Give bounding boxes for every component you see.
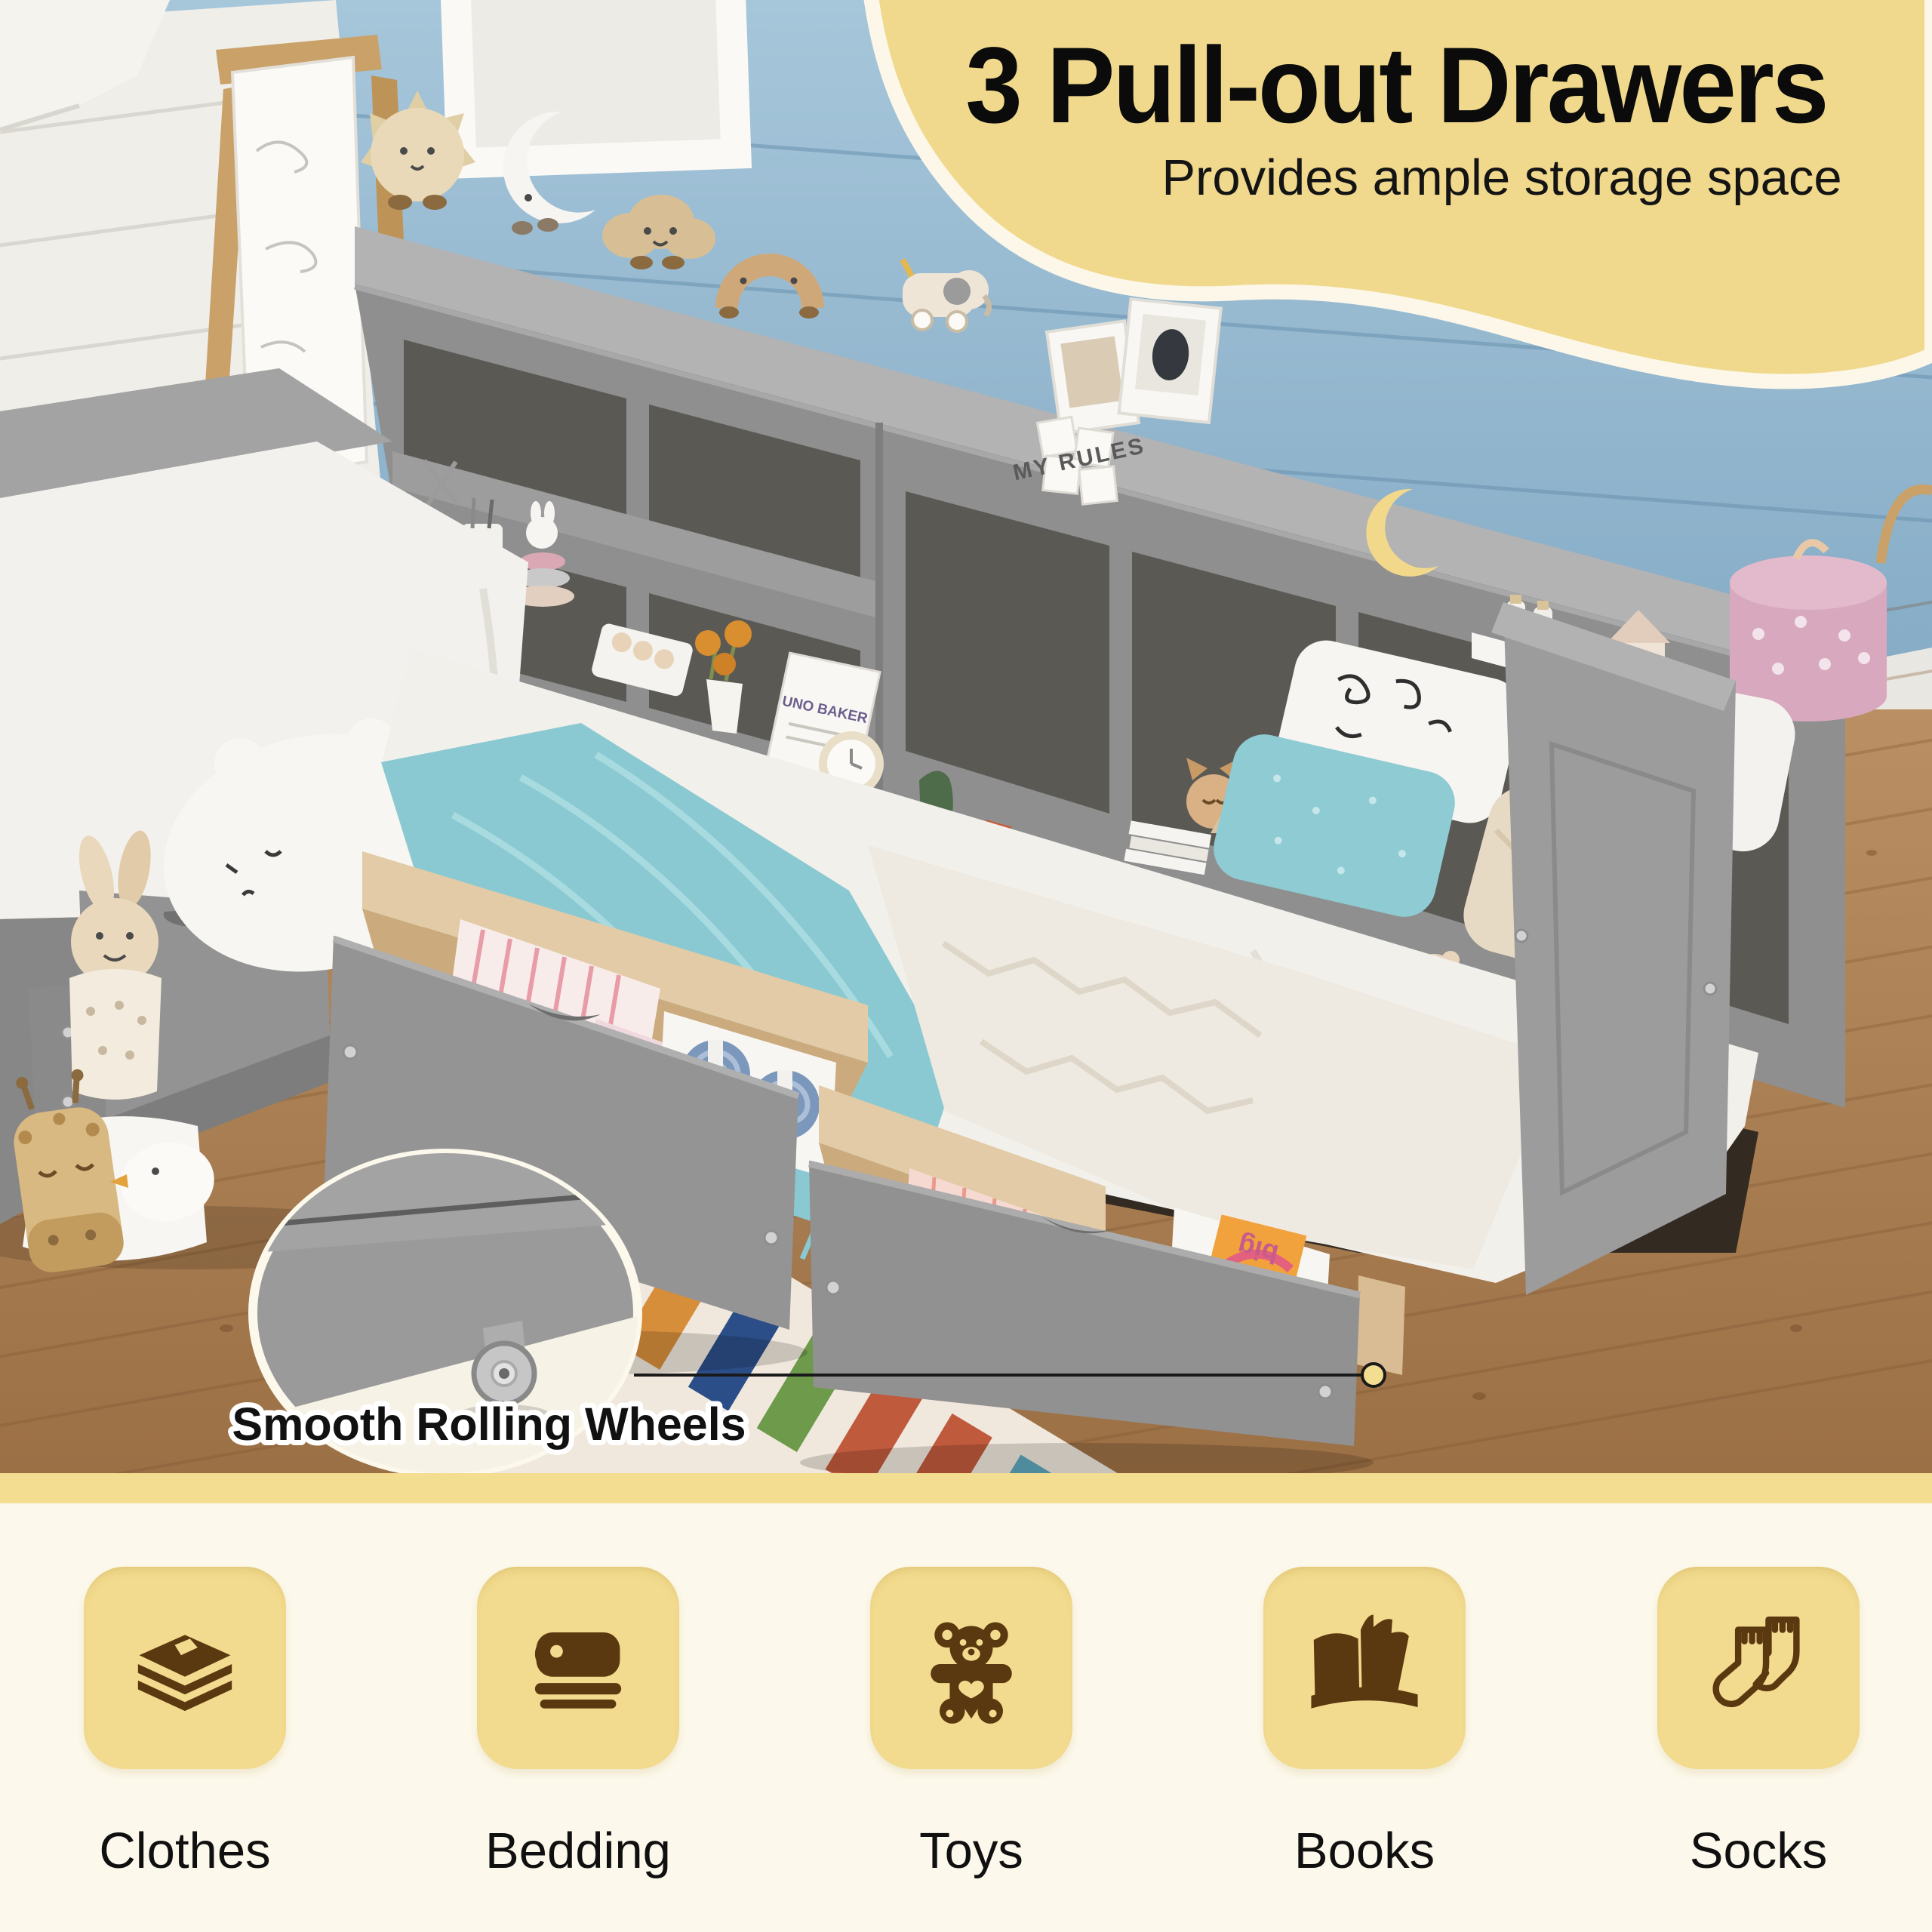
page-subtitle: Provides ample storage space — [1102, 148, 1902, 208]
product-infographic: UNO BAKER — [0, 0, 1932, 1932]
category-toys: Toys — [870, 1567, 1072, 1880]
category-label: Toys — [870, 1822, 1072, 1880]
polka-hatbox — [1730, 543, 1887, 721]
callout-dot — [1362, 1364, 1385, 1386]
clothes-icon — [122, 1604, 248, 1731]
picture-frame — [439, 0, 752, 179]
callout-label: Smooth Rolling Wheels — [232, 1398, 746, 1450]
bedding-icon — [515, 1604, 641, 1731]
toys-tile — [870, 1567, 1072, 1769]
category-label: Bedding — [477, 1822, 679, 1880]
category-books: Books — [1263, 1567, 1466, 1880]
storage-categories-section: Clothes Bedding — [0, 1503, 1932, 1932]
books-icon — [1301, 1604, 1428, 1731]
page-title: 3 Pull-out Drawers — [923, 21, 1869, 151]
category-label: Books — [1263, 1822, 1466, 1880]
category-label: Socks — [1657, 1822, 1860, 1880]
socks-tile — [1657, 1567, 1860, 1769]
bed-leg — [1357, 1275, 1405, 1375]
toys-icon — [908, 1604, 1035, 1731]
socks-icon — [1695, 1604, 1822, 1731]
room-photo-illustration: UNO BAKER — [0, 0, 1932, 1473]
category-bedding: Bedding — [477, 1567, 679, 1880]
footboard — [1491, 602, 1736, 1295]
books-tile — [1263, 1567, 1466, 1769]
category-socks: Socks — [1657, 1567, 1860, 1880]
divider-band — [0, 1473, 1932, 1503]
category-label: Clothes — [84, 1822, 286, 1880]
category-clothes: Clothes — [84, 1567, 286, 1880]
clothes-tile — [84, 1567, 286, 1769]
bedding-tile — [477, 1567, 679, 1769]
